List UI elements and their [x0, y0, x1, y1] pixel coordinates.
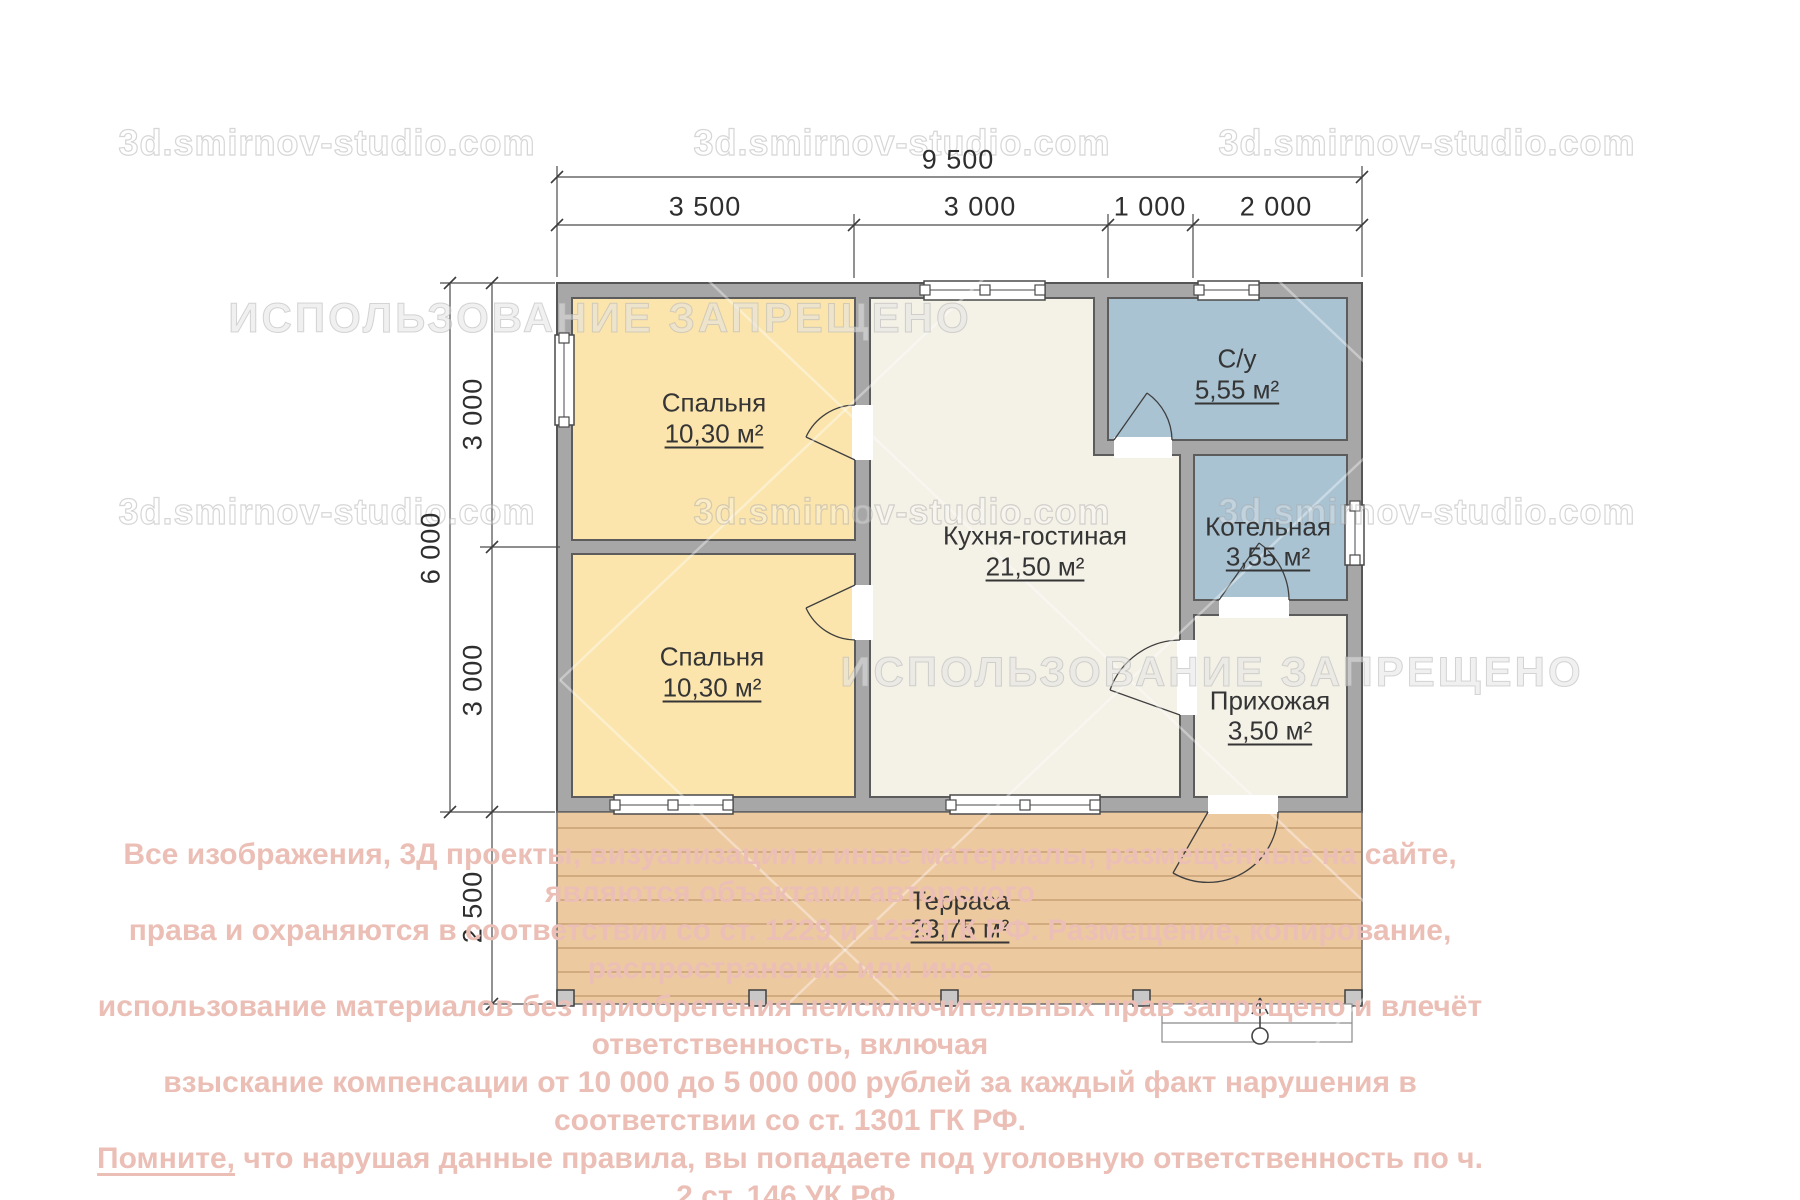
room-label-bathroom: С/у [1218, 344, 1257, 375]
copyright-notice: Все изображения, 3Д проекты, визуализаци… [90, 836, 1490, 1200]
copyright-line: взыскание компенсации от 10 000 до 5 000… [90, 1064, 1490, 1140]
watermark-site: 3d.smirnov-studio.com [693, 122, 1110, 164]
dim-segment-1000: 1 000 [1114, 192, 1187, 223]
watermark-site: 3d.smirnov-studio.com [1218, 122, 1635, 164]
watermark-site: 3d.smirnov-studio.com [118, 491, 535, 533]
room-area-kitchen-living: 21,50 м² [986, 552, 1085, 583]
room-label-bedroom-1: Спальня [662, 388, 766, 419]
copyright-line5-rest: что нарушая данные правила, вы попадаете… [235, 1142, 1483, 1200]
room-label-boiler: Котельная [1205, 512, 1331, 543]
dim-segment-3500: 3 500 [669, 192, 742, 223]
copyright-line: использование материалов без приобретени… [90, 988, 1490, 1064]
floor-plan-page: 3d.smirnov-studio.com 3d.smirnov-studio.… [0, 0, 1800, 1200]
dim-total-height: 6 000 [416, 512, 447, 585]
copyright-line: Помните, что нарушая данные правила, вы … [90, 1140, 1490, 1200]
watermark-forbidden: ИСПОЛЬЗОВАНИЕ ЗАПРЕЩЕНО [228, 294, 971, 342]
room-label-bedroom-2: Спальня [660, 642, 764, 673]
copyright-line: права и охраняются в соответствии со ст.… [90, 912, 1490, 988]
dim-segment-3000: 3 000 [944, 192, 1017, 223]
dim-total-width: 9 500 [922, 145, 995, 176]
room-area-bedroom-2: 10,30 м² [663, 673, 762, 704]
copyright-line5-lead: Помните, [97, 1142, 235, 1175]
dim-left-3000-bottom: 3 000 [458, 644, 489, 717]
room-label-kitchen-living: Кухня-гостиная [943, 521, 1127, 552]
copyright-line: Все изображения, 3Д проекты, визуализаци… [90, 836, 1490, 912]
room-area-boiler: 3,55 м² [1226, 542, 1310, 573]
dim-segment-2000: 2 000 [1240, 192, 1313, 223]
room-area-bathroom: 5,55 м² [1195, 375, 1279, 406]
room-area-hallway: 3,50 м² [1228, 716, 1312, 747]
room-label-hallway: Прихожая [1210, 686, 1330, 717]
dim-left-3000-top: 3 000 [458, 378, 489, 451]
watermark-site: 3d.smirnov-studio.com [118, 122, 535, 164]
room-area-bedroom-1: 10,30 м² [665, 419, 764, 450]
